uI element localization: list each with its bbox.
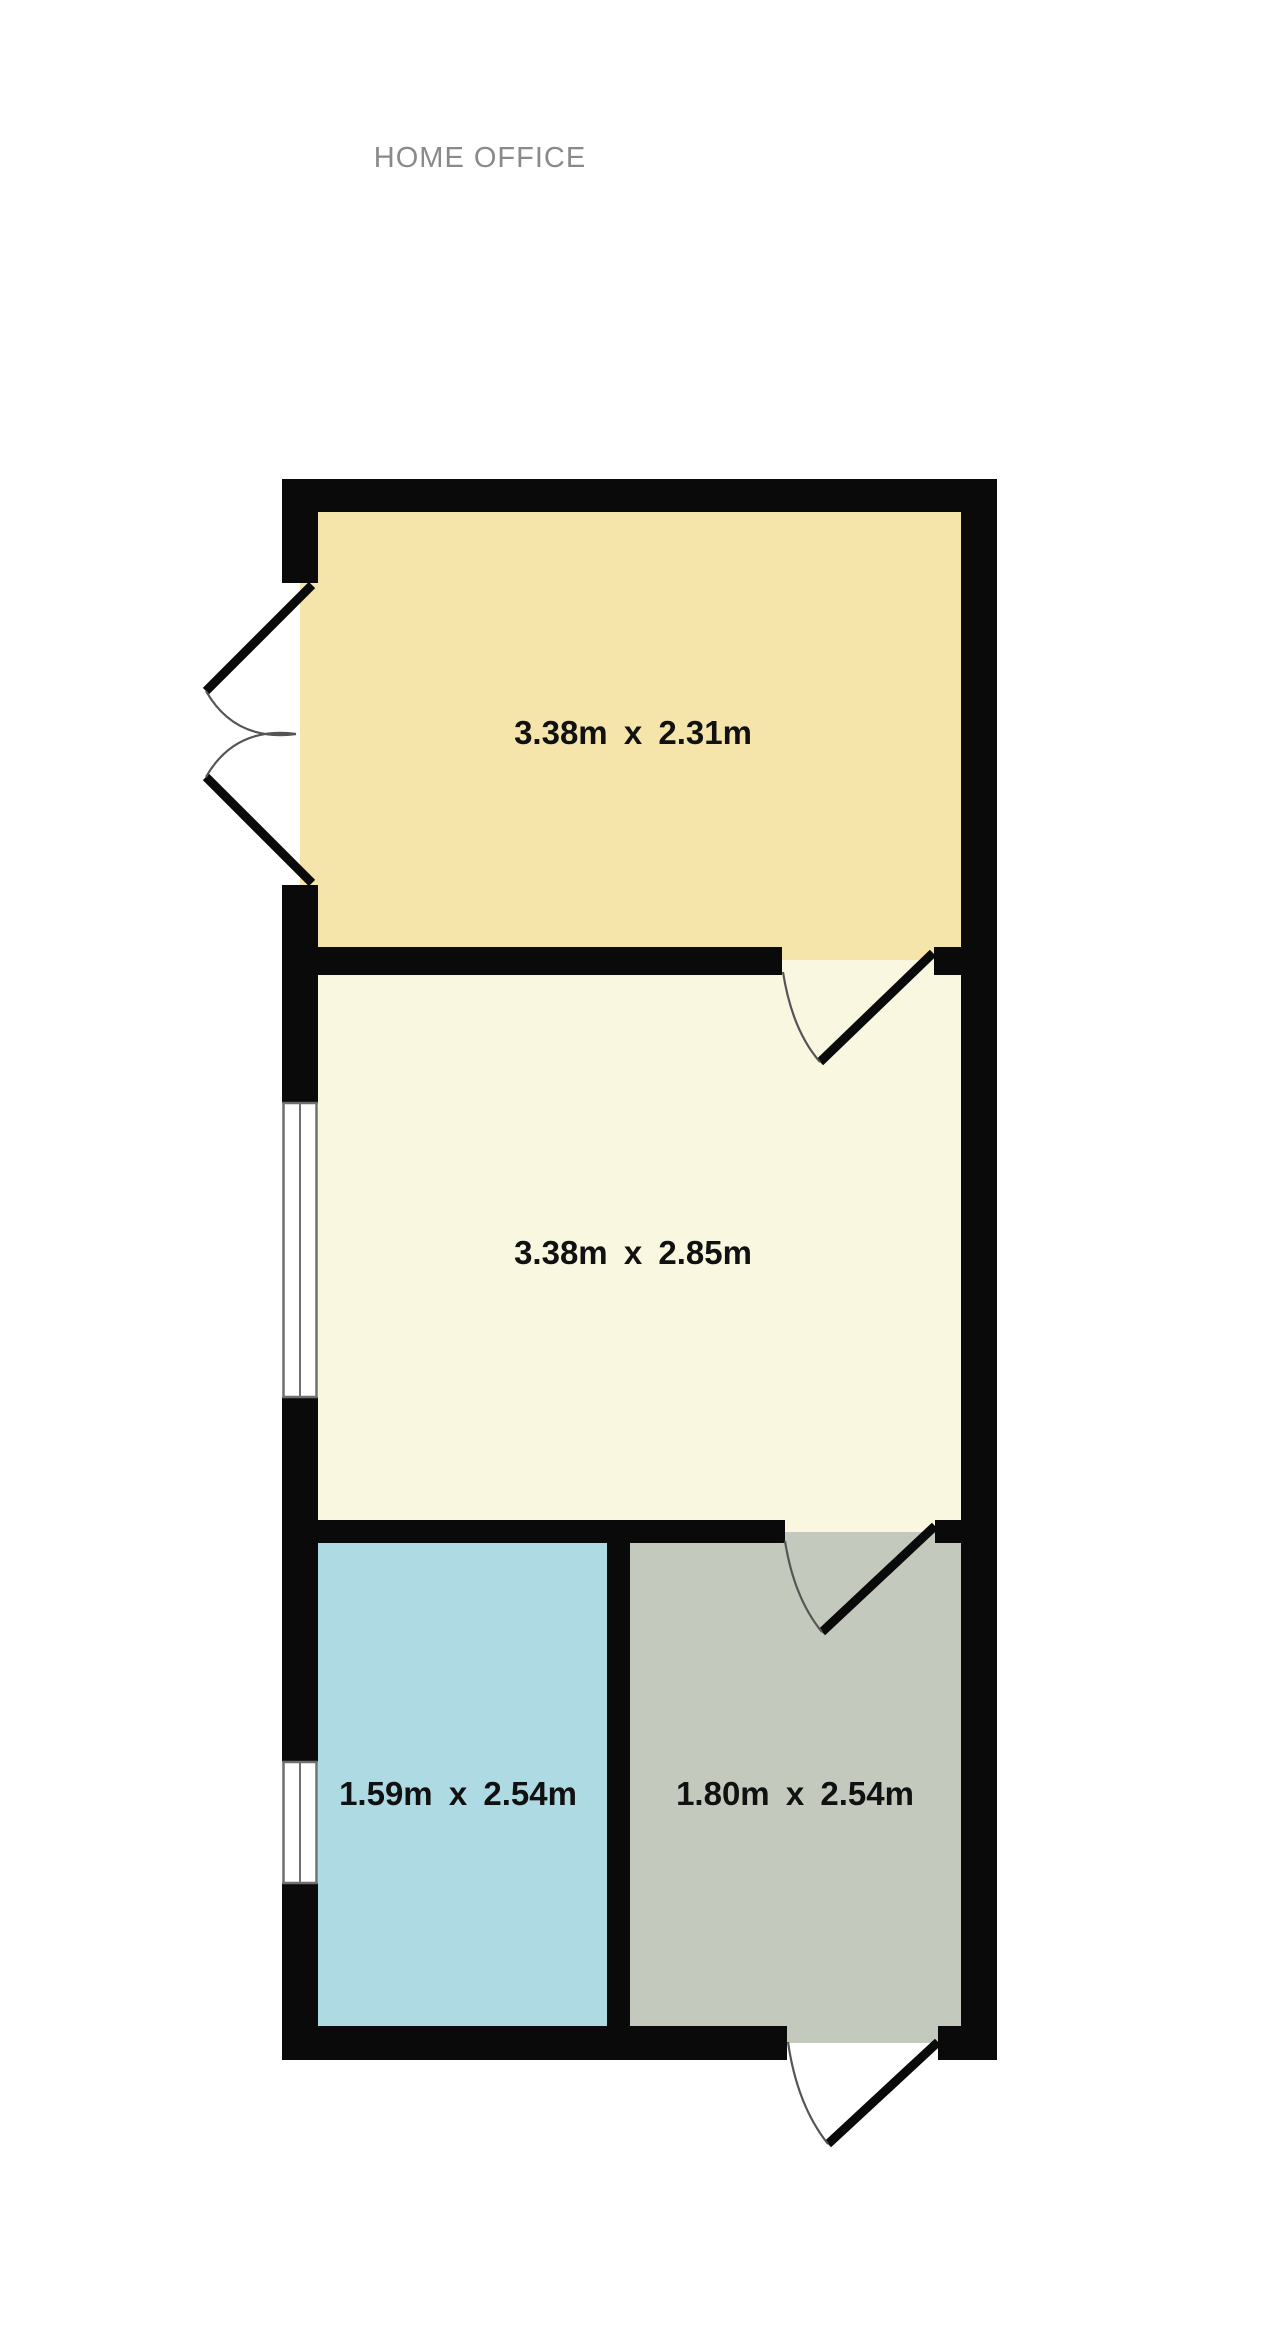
door-swing-arc <box>788 2042 828 2144</box>
exterior-wall-right <box>961 479 997 2060</box>
exterior-wall-left-segment-3 <box>282 1397 318 1762</box>
middle-room-dimensions-label: 3.38m x 2.85m <box>514 1234 752 1271</box>
bottom-right-room-dimensions-label: 1.80m x 2.54m <box>676 1775 914 1812</box>
exterior-wall-left-segment-4 <box>282 1883 318 2060</box>
bottom-left-room-window <box>284 1762 317 1883</box>
exterior-wall-bottom-left-segment <box>282 2026 787 2060</box>
interior-wall-bottom-divider <box>607 1543 630 2026</box>
exterior-wall-top <box>282 479 997 512</box>
top-room-dimensions-label: 3.38m x 2.31m <box>514 714 752 751</box>
door-swing-arc-lower <box>206 733 296 777</box>
door-leaf <box>828 2042 938 2144</box>
bottom-left-room-dimensions-label: 1.59m x 2.54m <box>339 1775 577 1812</box>
entry-double-door <box>206 585 312 883</box>
page-title: HOME OFFICE <box>374 142 586 174</box>
interior-wall-middle-bottom <box>318 1520 785 1543</box>
floorplan-canvas: HOME OFFICE <box>0 0 1280 2345</box>
door-leaf-lower <box>206 777 312 883</box>
exterior-wall-bottom-right-segment <box>938 2026 997 2060</box>
exterior-wall-left-segment-1 <box>282 479 318 583</box>
exterior-back-door <box>788 2042 938 2144</box>
interior-wall-top-middle-stub <box>934 947 961 975</box>
floorplan-page: HOME OFFICE <box>0 0 1280 2345</box>
middle-room-window <box>284 1103 317 1397</box>
door-leaf-upper <box>206 585 312 691</box>
interior-wall-middle-bottom-stub <box>935 1520 961 1543</box>
exterior-wall-left-segment-2 <box>282 885 318 1103</box>
interior-wall-top-middle <box>318 947 782 975</box>
door-swing-arc-upper <box>206 691 296 735</box>
